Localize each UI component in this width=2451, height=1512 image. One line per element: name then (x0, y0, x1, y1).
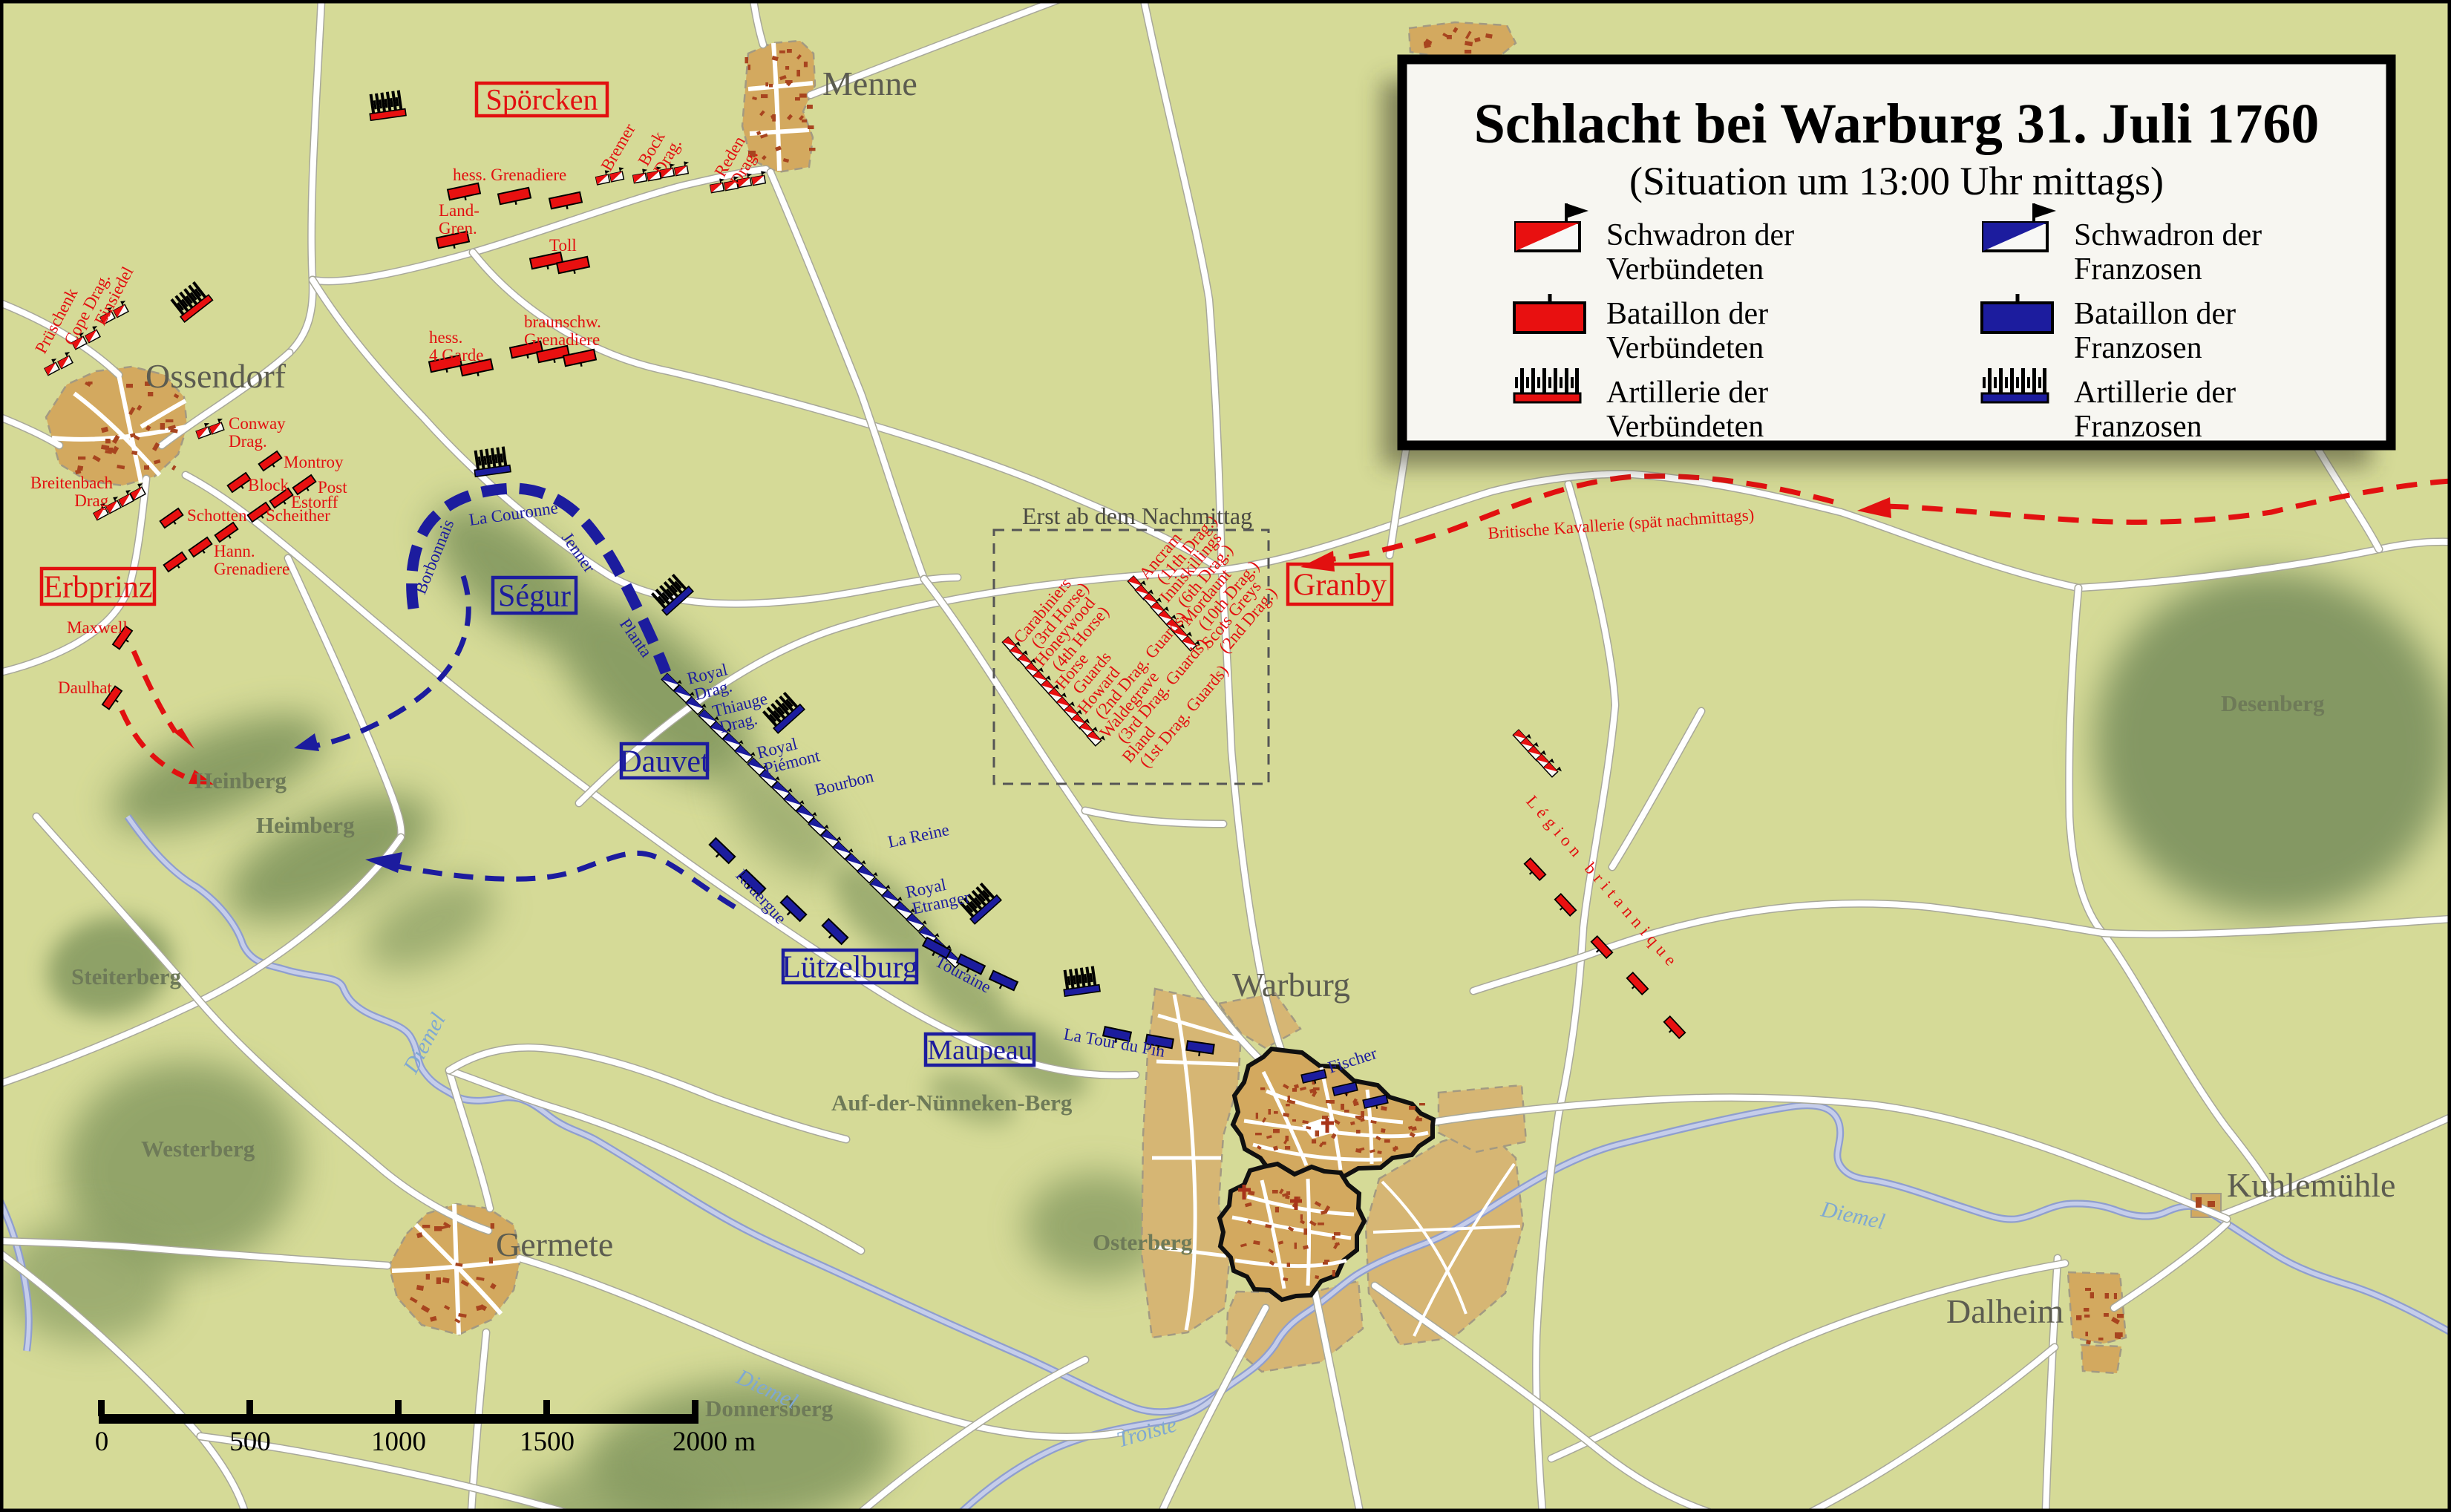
svg-text:Dalheim: Dalheim (1946, 1292, 2064, 1330)
svg-text:Ossendorf: Ossendorf (145, 357, 287, 395)
svg-text:Steiterberg: Steiterberg (71, 963, 182, 989)
svg-text:1500: 1500 (520, 1427, 575, 1457)
svg-text:Block: Block (248, 476, 289, 494)
svg-text:Granby: Granby (1293, 568, 1387, 602)
svg-text:(Situation um 13:00 Uhr mittag: (Situation um 13:00 Uhr mittags) (1629, 159, 2164, 203)
svg-text:Daulhat: Daulhat (58, 678, 112, 697)
svg-text:Dauvet: Dauvet (619, 744, 710, 779)
svg-text:Artillerie derVerbündeten: Artillerie derVerbündeten (1606, 376, 1768, 444)
svg-text:Scheither: Scheither (266, 506, 330, 525)
svg-text:Ségur: Ségur (498, 579, 571, 613)
svg-text:0: 0 (95, 1427, 109, 1457)
svg-text:Spörcken: Spörcken (485, 83, 598, 117)
svg-text:Kuhlemühle: Kuhlemühle (2227, 1166, 2395, 1204)
svg-text:Germete: Germete (496, 1225, 613, 1263)
svg-text:Heimberg: Heimberg (256, 812, 355, 838)
svg-text:Westerberg: Westerberg (141, 1136, 255, 1162)
svg-text:Montroy: Montroy (284, 453, 344, 471)
svg-text:Erst ab dem Nachmittag: Erst ab dem Nachmittag (1022, 503, 1252, 529)
svg-text:1000: 1000 (371, 1427, 426, 1457)
svg-text:Schlacht bei Warburg 31. Juli: Schlacht bei Warburg 31. Juli 1760 (1474, 93, 2320, 155)
svg-text:Maupeau: Maupeau (927, 1035, 1032, 1066)
svg-text:Bataillon derVerbündeten: Bataillon derVerbündeten (1606, 297, 1768, 365)
svg-text:braunschw.Grenadiere: braunschw.Grenadiere (524, 312, 601, 349)
svg-text:Menne: Menne (822, 65, 917, 102)
svg-text:Lützelburg: Lützelburg (782, 950, 918, 984)
svg-text:Toll: Toll (549, 236, 577, 255)
svg-text:Osterberg: Osterberg (1093, 1229, 1193, 1255)
svg-text:hess. Grenadiere: hess. Grenadiere (453, 166, 566, 184)
svg-text:Land-Gren.: Land-Gren. (439, 201, 480, 238)
svg-text:Erbprinz: Erbprinz (44, 570, 153, 604)
svg-text:Warburg: Warburg (1232, 966, 1350, 1004)
svg-text:Desenberg: Desenberg (2221, 690, 2325, 716)
svg-text:Maxwell: Maxwell (67, 618, 128, 637)
svg-text:Heinberg: Heinberg (194, 768, 287, 793)
svg-text:Auf-der-Nünneken-Berg: Auf-der-Nünneken-Berg (831, 1090, 1073, 1116)
svg-text:Schotten: Schotten (187, 506, 247, 525)
svg-text:500: 500 (229, 1427, 271, 1457)
svg-text:2000 m: 2000 m (673, 1427, 756, 1457)
